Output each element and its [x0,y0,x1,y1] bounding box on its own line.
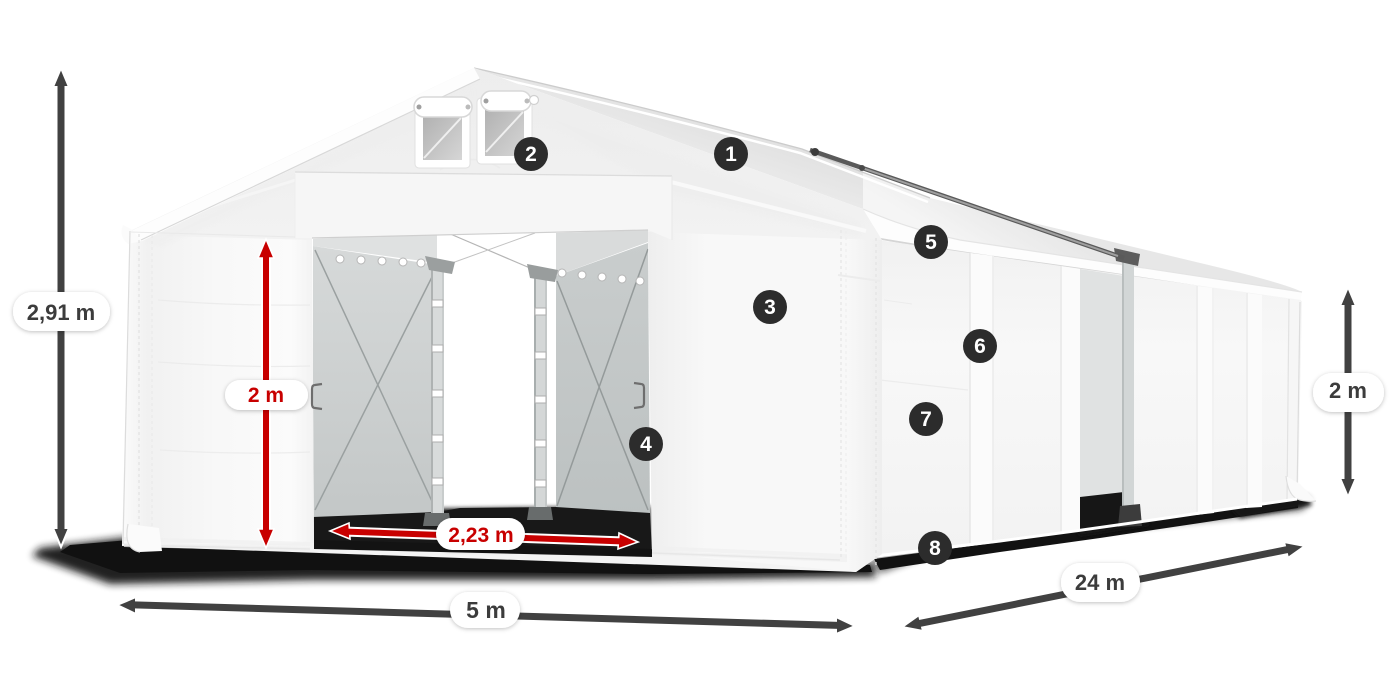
svg-text:2 m: 2 m [1329,378,1367,403]
svg-text:5: 5 [925,231,937,254]
svg-text:4: 4 [640,433,652,456]
svg-text:2 m: 2 m [248,384,284,407]
svg-text:2,91 m: 2,91 m [27,300,96,325]
svg-text:6: 6 [974,335,986,358]
svg-text:2: 2 [525,143,537,166]
svg-text:1: 1 [725,143,737,166]
svg-text:5 m: 5 m [466,597,506,623]
svg-text:2,23 m: 2,23 m [448,524,513,547]
svg-text:7: 7 [920,408,932,431]
svg-text:24 m: 24 m [1075,570,1125,595]
svg-text:8: 8 [929,537,941,560]
svg-text:3: 3 [764,296,776,319]
